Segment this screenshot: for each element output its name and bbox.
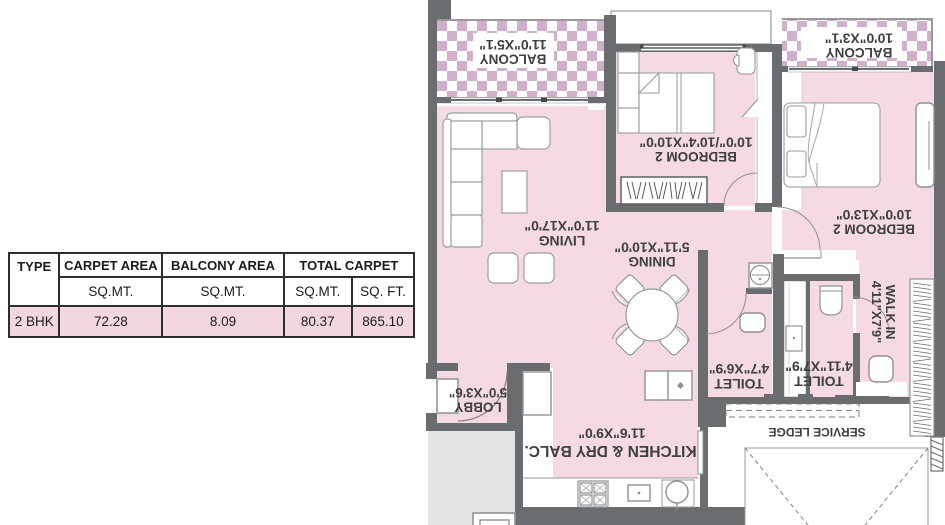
svg-text:4'11"X7'9": 4'11"X7'9" — [785, 359, 852, 375]
svg-text:11'0"X5'1": 11'0"X5'1" — [479, 37, 546, 53]
svg-text:LIVING: LIVING — [539, 233, 586, 249]
svg-text:5'0"X3'6": 5'0"X3'6" — [449, 385, 507, 400]
svg-text:10'0"X13'0": 10'0"X13'0" — [836, 207, 912, 223]
svg-text:10'0"X3'1": 10'0"X3'1" — [825, 31, 893, 47]
svg-text:10'0"/10'4"X10'0": 10'0"/10'4"X10'0" — [639, 135, 752, 151]
svg-text:LOBBY: LOBBY — [454, 400, 501, 415]
svg-text:TOILET: TOILET — [794, 374, 844, 390]
svg-text:4'7"X6'9": 4'7"X6'9" — [709, 361, 769, 377]
svg-text:SERVICE LEDGE: SERVICE LEDGE — [768, 425, 865, 439]
svg-text:11'0"X17'0": 11'0"X17'0" — [524, 218, 599, 234]
svg-text:11'6"X9'0": 11'6"X9'0" — [578, 426, 645, 442]
svg-text:WALK IN: WALK IN — [883, 285, 898, 340]
svg-text:TOILET: TOILET — [714, 376, 764, 392]
svg-text:5'11"X10'0": 5'11"X10'0" — [614, 240, 689, 256]
svg-text:4'11"X7'9": 4'11"X7'9" — [869, 281, 884, 344]
svg-text:KITCHEN & DRY BALC.: KITCHEN & DRY BALC. — [524, 442, 696, 459]
